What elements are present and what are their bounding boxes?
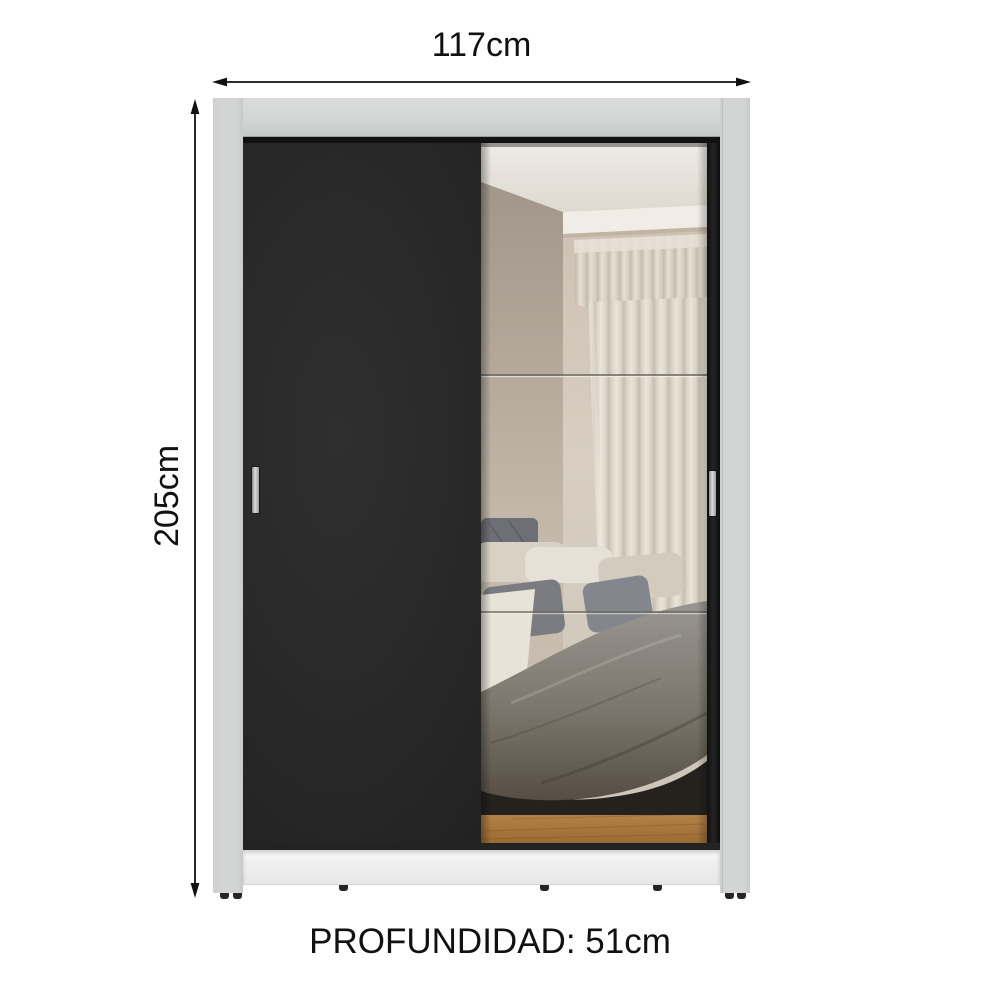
frame-right-panel	[720, 98, 750, 893]
wardrobe-foot	[737, 893, 746, 899]
arrowhead-down-icon	[191, 883, 200, 898]
base-plinth	[243, 850, 720, 885]
arrowhead-up-icon	[191, 99, 200, 114]
height-dimension-label: 205cm	[148, 421, 186, 571]
arrowhead-left-icon	[212, 78, 227, 87]
wardrobe-foot	[220, 893, 229, 899]
wardrobe-foot	[339, 885, 348, 891]
right-door-handle	[709, 471, 716, 516]
black-sliding-door	[243, 143, 481, 843]
depth-dimension-label: PROFUNDIDAD: 51cm	[140, 922, 840, 962]
wardrobe-foot	[653, 885, 662, 891]
arrowhead-right-icon	[736, 78, 751, 87]
left-door-handle	[252, 467, 259, 513]
top-rail	[243, 98, 720, 137]
width-dimension-label: 117cm	[213, 26, 750, 65]
wardrobe	[213, 98, 750, 900]
wardrobe-dimension-diagram: 117cm 205cm	[0, 0, 1000, 1000]
mirror-reflection-scene	[481, 143, 707, 843]
wardrobe-foot	[540, 885, 549, 891]
mirror-sliding-door	[481, 143, 720, 843]
door-opening	[243, 137, 720, 850]
wardrobe-foot	[725, 893, 734, 899]
width-dimension-arrow	[211, 75, 752, 89]
wardrobe-foot	[233, 893, 242, 899]
frame-left-panel	[213, 98, 243, 893]
height-dimension-arrow	[188, 98, 202, 899]
